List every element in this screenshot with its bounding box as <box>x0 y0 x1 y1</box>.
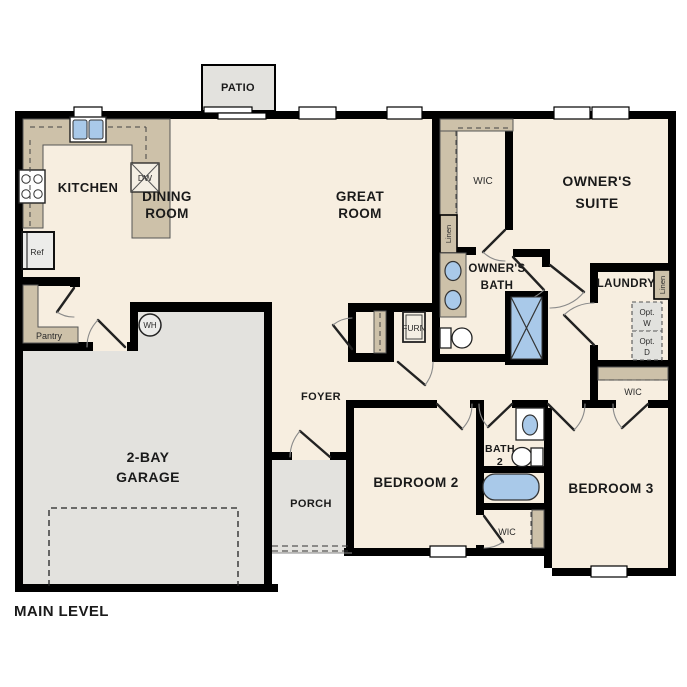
dining-room-label-2: ROOM <box>145 206 189 221</box>
refrigerator-label: Ref <box>30 247 44 257</box>
owner-toilet-bowl <box>452 328 472 348</box>
bath2-sink <box>523 415 538 435</box>
hall-wic-shelf <box>598 367 668 380</box>
laundry-label: LAUNDRY <box>597 278 656 290</box>
bedroom3-label: BEDROOM 3 <box>568 481 653 496</box>
opt-washer-label-1: Opt. <box>639 308 654 317</box>
floor-plan-page: PATIO KITCHEN DINING ROOM GREAT ROOM WIC… <box>0 0 687 687</box>
kitchen-label: KITCHEN <box>58 180 119 195</box>
bath2-toilet-bowl <box>512 448 532 467</box>
owner-wic-label: WIC <box>473 176 492 187</box>
opt-washer-label-2: W <box>643 319 651 328</box>
owners-suite-label-1: OWNER'S <box>562 173 631 189</box>
owner-toilet-tank <box>440 328 451 348</box>
owner-suite-window-2 <box>592 107 629 119</box>
kitchen-sink-basin-right <box>89 120 103 139</box>
stove <box>19 170 45 203</box>
foyer-label: FOYER <box>301 391 341 403</box>
bath2-tub <box>483 474 539 500</box>
great-room-window-2 <box>387 107 422 119</box>
bedroom3-window <box>591 566 627 577</box>
porch-label: PORCH <box>290 498 332 510</box>
pantry-label: Pantry <box>36 331 63 341</box>
bedroom2-label: BEDROOM 2 <box>373 475 458 490</box>
owners-suite-label-2: SUITE <box>575 195 618 211</box>
garage-label-1: 2-BAY <box>127 449 170 465</box>
opt-dryer-label-2: D <box>644 348 650 357</box>
great-room-label-1: GREAT <box>336 189 385 204</box>
linen-laundry-label: Linen <box>658 276 667 294</box>
patio-slider-panel-1 <box>204 107 252 113</box>
linen-wic-label: Linen <box>444 225 453 243</box>
dishwasher-label: DW <box>138 173 152 183</box>
bedroom2-wic-shelf <box>532 510 544 548</box>
owners-bath-label-1: OWNER'S <box>468 263 525 275</box>
kitchen-sink-basin-left <box>73 120 87 139</box>
owner-bath-sink-1 <box>445 262 461 281</box>
garage-label-2: GARAGE <box>116 469 180 485</box>
opt-dryer-label-1: Opt. <box>639 337 654 346</box>
bedroom2-window <box>430 546 466 557</box>
dining-room-label-1: DINING <box>142 189 192 204</box>
owners-bath-label-2: BATH <box>481 280 514 292</box>
owner-bath-sink-2 <box>445 291 461 310</box>
hall-wic-label: WIC <box>624 387 642 397</box>
great-room-window-1 <box>299 107 336 119</box>
owner-wic-shelf-top <box>440 119 513 131</box>
furnace-label: FURN <box>402 323 426 333</box>
floor-bedroom3-strip <box>552 548 668 568</box>
bath2-label-1: BATH <box>485 443 515 455</box>
garage-slab <box>23 312 264 584</box>
floor-plan-svg: PATIO KITCHEN DINING ROOM GREAT ROOM WIC… <box>0 0 687 687</box>
patio-slider-panel-2 <box>218 113 266 119</box>
owner-wic-shelf-left <box>440 131 457 217</box>
bath2-toilet-tank <box>531 448 543 466</box>
bath2-label-2: 2 <box>497 456 503 468</box>
bedroom2-wic-label: WIC <box>498 527 516 537</box>
patio-label: PATIO <box>221 82 255 94</box>
water-heater-label: WH <box>143 321 157 330</box>
plan-title: MAIN LEVEL <box>14 603 109 620</box>
great-room-label-2: ROOM <box>338 206 382 221</box>
owner-suite-window-1 <box>554 107 590 119</box>
